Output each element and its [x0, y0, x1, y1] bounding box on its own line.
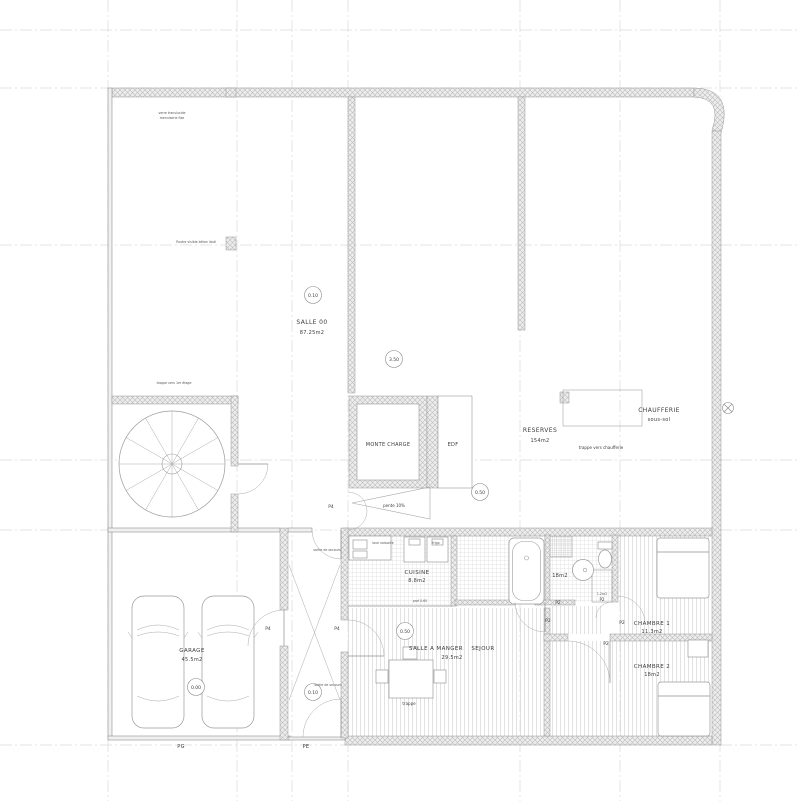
monte-charge-label: MONTE CHARGE — [366, 442, 411, 448]
door-code-p4-3: P4 — [334, 626, 340, 632]
chambre-divider-wall-a — [544, 634, 568, 641]
top-wall — [112, 88, 694, 97]
garage-area: 45.5m2 — [182, 657, 203, 663]
spiral-staircase — [119, 411, 225, 517]
chair-right — [434, 670, 446, 683]
stair-trap-note: trappe vers 1er étage — [157, 381, 192, 385]
plan-canvas: 0.10 3.50 0.50 0.50 0.10 0.00 SALLE 00 8… — [0, 0, 800, 801]
right-wall — [712, 131, 721, 745]
corridor-right-wall-b — [341, 652, 348, 738]
entry-bottom-door-arc — [303, 699, 341, 737]
floor-trap-note: trappe — [402, 701, 416, 706]
garage-bottom-wall — [108, 736, 290, 740]
wc-door-code: P2 — [600, 597, 605, 602]
boiler-trap-note: trappe vers chaufferie — [579, 445, 624, 450]
chambre1-label: CHAMBRE 1 — [634, 621, 670, 627]
chambre1-area: 11.3m2 — [642, 629, 663, 635]
bath-area: 18m2 — [552, 573, 568, 579]
kitchen-sink — [353, 540, 367, 549]
garage-right-wall-b — [280, 646, 288, 740]
stair-door-arc — [238, 464, 268, 494]
toilet-bowl — [599, 550, 612, 568]
survey-marker — [723, 403, 734, 414]
fridge-inner — [409, 539, 420, 545]
garage-top-wall — [108, 528, 280, 532]
door-code-p4-1: P4 — [328, 504, 334, 510]
entry-top-door-arc — [312, 530, 341, 559]
salle00-area: 87.25m2 — [300, 330, 324, 336]
hall-floor — [550, 606, 604, 634]
salle-a-manger-label: SALLE A MANGER — [409, 646, 463, 652]
chaufferie-label: CHAUFFERIE — [638, 407, 680, 414]
door-code-p2-3: P2 — [619, 620, 625, 626]
door-code-p2-2: P2 — [545, 618, 551, 624]
level-entree: 0.10 — [308, 690, 318, 696]
exit-note-2: sortie de secours — [314, 683, 342, 687]
beam-note: Poutre visible béton lissé — [176, 240, 216, 244]
toilet-tank — [598, 542, 612, 549]
exit-note-1: sortie de secours — [313, 548, 341, 552]
level-garage: 0.00 — [191, 685, 201, 691]
double-door-arc-b — [348, 511, 367, 530]
bath-bottom-wall-a — [455, 600, 515, 605]
chambre2-label: CHAMBRE 2 — [634, 664, 670, 670]
stair-right-wall-b — [231, 494, 238, 532]
kitchen-bath-wall — [451, 536, 457, 606]
bath-mid-wall — [545, 535, 550, 602]
reserves-label: RESERVES — [523, 427, 557, 434]
bottom-wall — [345, 736, 712, 745]
door-code-pe: PE — [303, 744, 310, 750]
car-1 — [128, 596, 188, 728]
rounded-corner-wall — [694, 88, 724, 133]
wall-reserves-west — [518, 97, 525, 330]
left-wall — [108, 88, 112, 737]
sejour-area: 29.5m2 — [442, 655, 463, 661]
kitchen-sink-2 — [353, 551, 367, 558]
level-sejour: 0.50 — [400, 629, 410, 635]
wc-area: 1.2m2 — [597, 592, 607, 596]
bathtub — [509, 538, 544, 604]
mid-wall — [345, 528, 712, 536]
garage-right-wall-a — [280, 528, 288, 610]
chaufferie-level: sous-sol — [648, 417, 671, 423]
bed-chambre1 — [657, 538, 709, 598]
double-door-arc-a — [348, 492, 367, 511]
dining-table — [389, 660, 433, 698]
chambre2-area: 18m2 — [644, 672, 660, 678]
sejour-label: SEJOUR — [471, 646, 494, 652]
column-top — [226, 88, 236, 97]
cuisine-label: CUISINE — [405, 570, 430, 576]
bath-east-wall — [612, 535, 618, 602]
level-salle00: 0.10 — [308, 293, 318, 299]
entry-top-wall — [288, 528, 312, 532]
entry-sill — [288, 737, 345, 740]
salle00-label: SALLE 00 — [296, 319, 327, 326]
dishwasher-note: lave vaisselle — [372, 541, 393, 545]
door-code-p2-4: P2 — [603, 641, 609, 647]
column-trap — [560, 392, 569, 403]
edf-label: EDF — [448, 442, 459, 448]
counter-depth-note: prof 0.60 — [413, 599, 427, 603]
door-code-p2-1: P2 — [555, 600, 561, 606]
corridor-right-wall-a — [341, 528, 348, 620]
bed-chambre2 — [658, 682, 710, 736]
level-etage: 3.50 — [389, 357, 399, 363]
boiler-trap-outline — [563, 390, 642, 426]
wall-salle00-east — [348, 97, 355, 393]
car-2 — [198, 596, 258, 728]
column-beam — [226, 237, 236, 250]
slope-note: pente 10% — [383, 503, 405, 508]
chair-left — [376, 670, 388, 683]
door-code-p4-2: P4 — [265, 626, 271, 632]
garage-label: GARAGE — [179, 648, 205, 654]
edf-divider-wall — [427, 396, 438, 488]
level-reserves: 0.50 — [475, 490, 485, 496]
shower-floor — [547, 536, 572, 557]
fridge-note: frigo — [432, 541, 439, 545]
floor-plan-svg: 0.10 3.50 0.50 0.50 0.10 0.00 SALLE 00 8… — [0, 0, 800, 801]
window-note-1: verre translucide — [158, 111, 185, 115]
window-note-2: menuiserie fixe — [160, 116, 185, 120]
stair-top-wall — [112, 396, 238, 404]
reserves-area: 154m2 — [530, 438, 549, 444]
nightstand — [688, 640, 708, 657]
stair-right-wall-a — [231, 396, 238, 466]
cuisine-area: 8.8m2 — [408, 578, 426, 584]
door-code-pg: PG — [177, 744, 185, 750]
